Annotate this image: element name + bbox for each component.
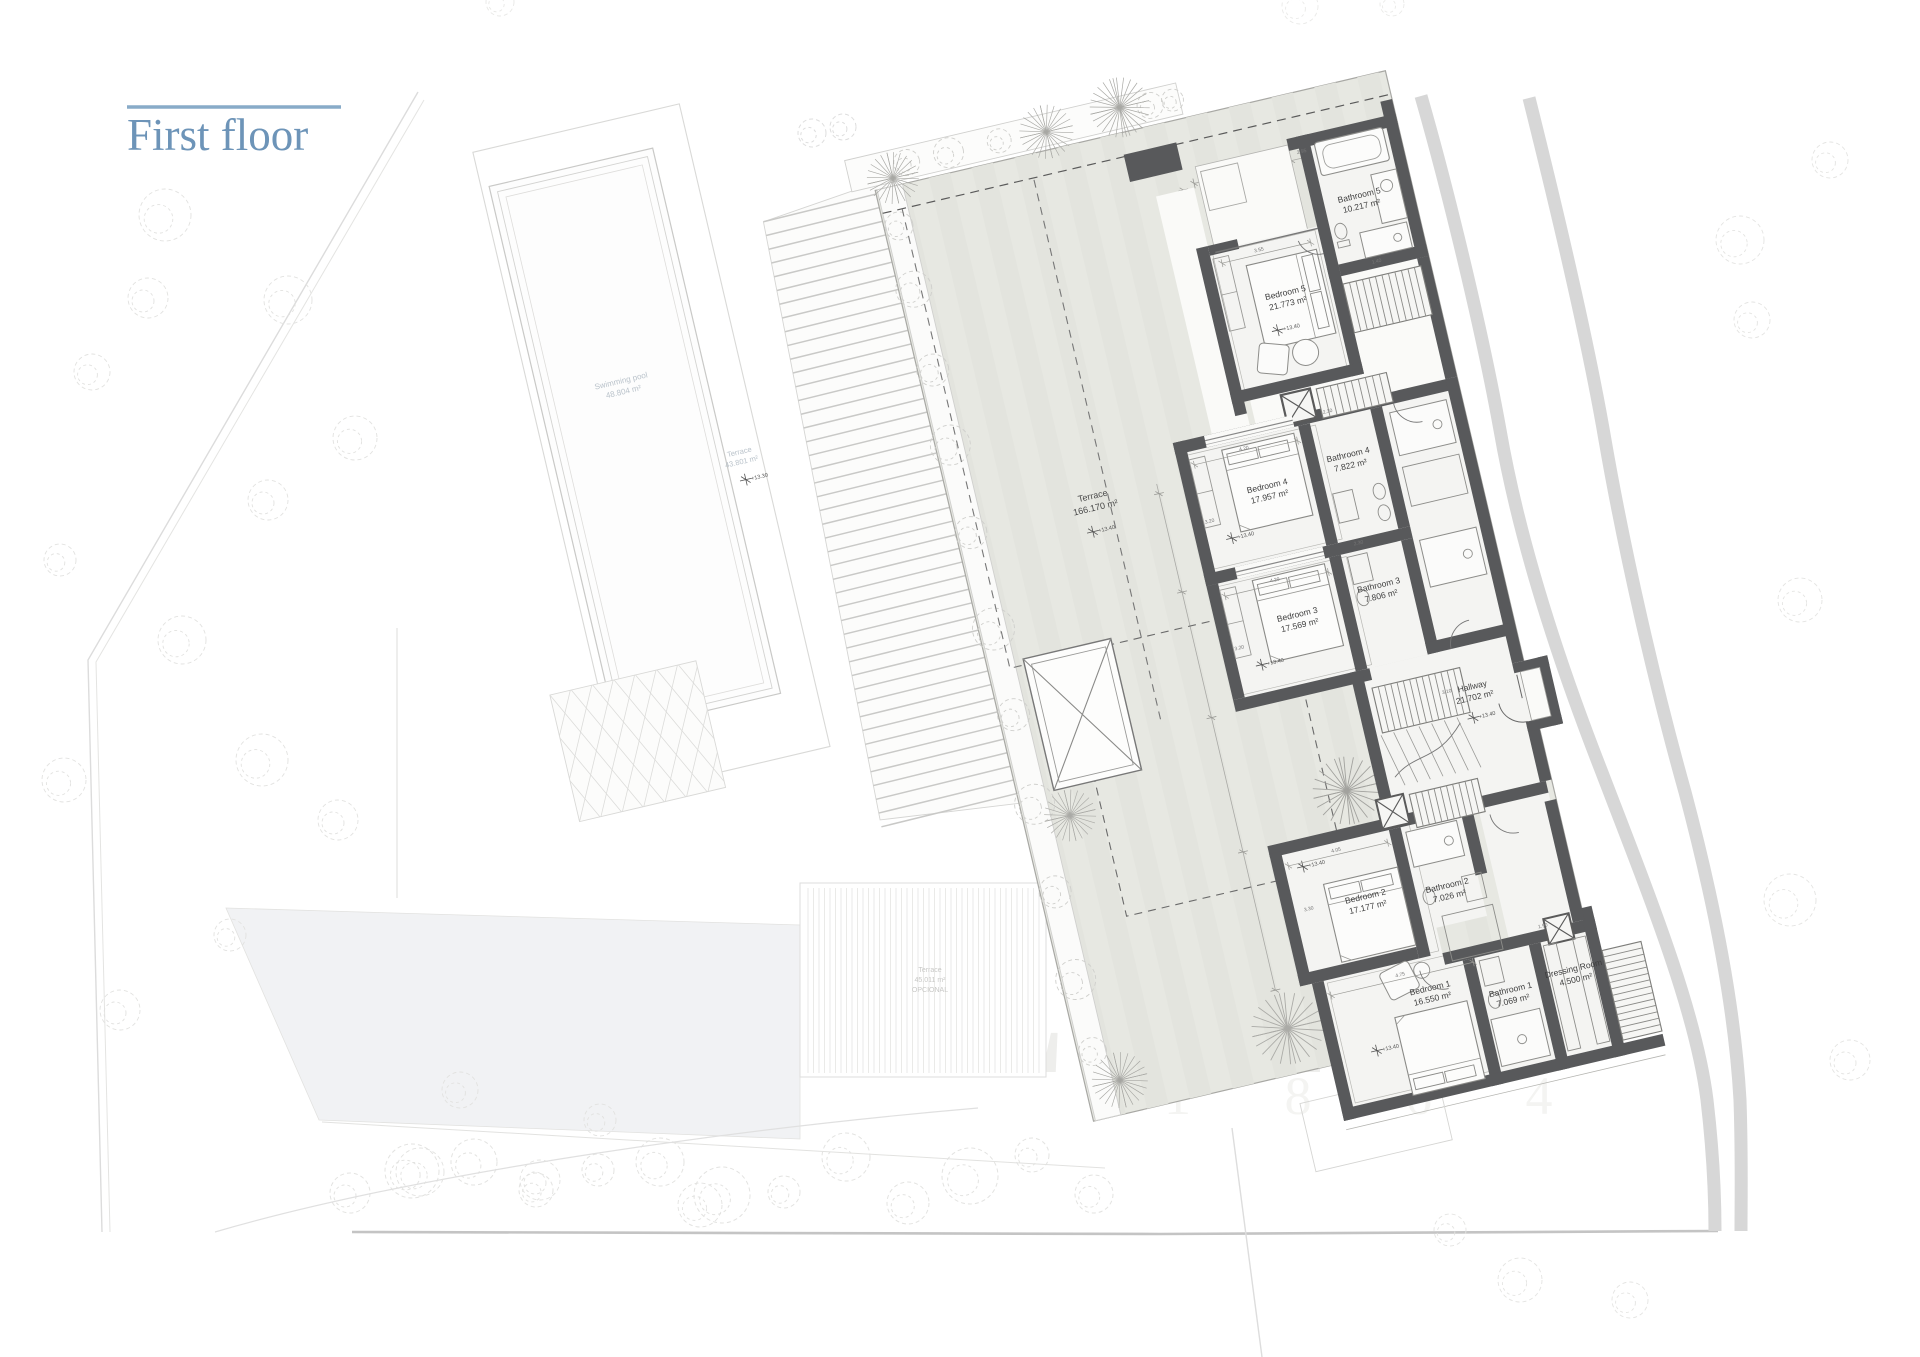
svg-text:Terrace: Terrace [918,967,941,974]
svg-text:OPCIONAL: OPCIONAL [912,987,948,994]
svg-text:45.011 m²: 45.011 m² [915,977,947,984]
svg-text:First floor: First floor [127,110,308,160]
